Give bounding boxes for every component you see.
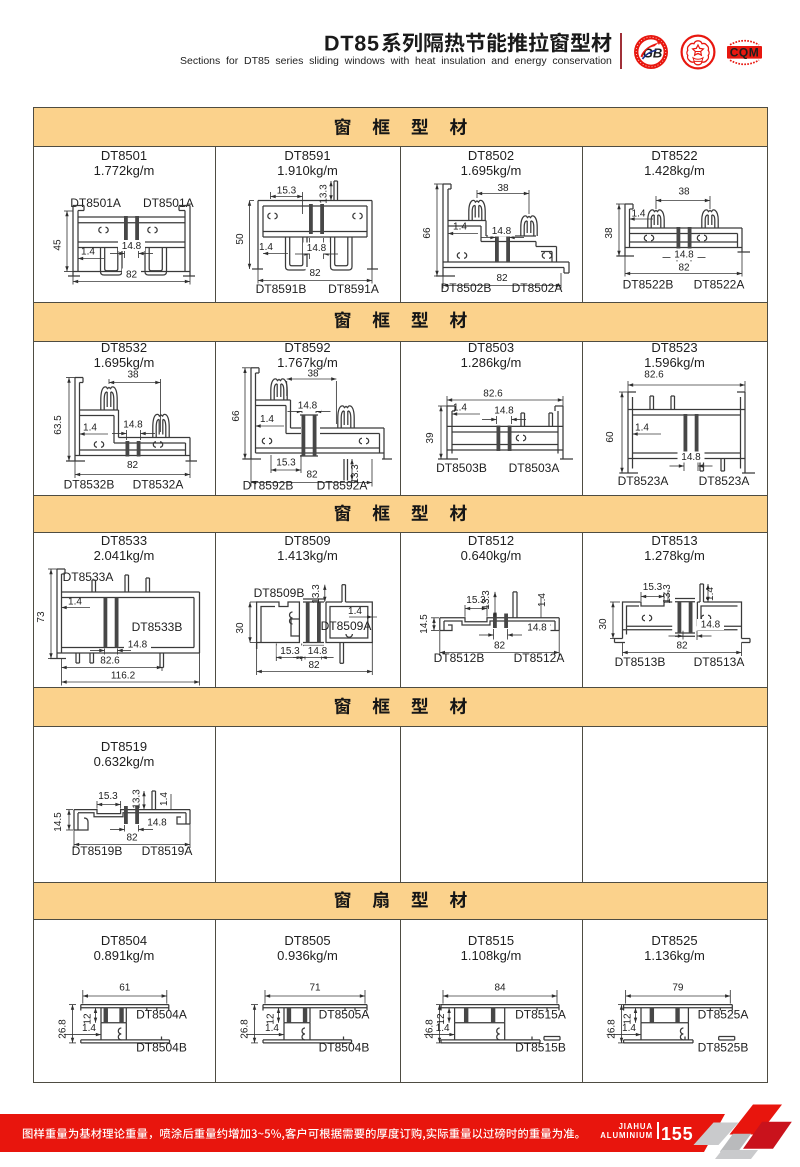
svg-text:63.5: 63.5 — [53, 415, 64, 435]
svg-text:14.8: 14.8 — [308, 646, 328, 657]
svg-text:14.8: 14.8 — [674, 250, 694, 261]
svg-text:82: 82 — [126, 833, 138, 844]
svg-text:DT8591A: DT8591A — [328, 282, 379, 296]
svg-text:DT8503A: DT8503A — [509, 461, 560, 475]
svg-text:1.4: 1.4 — [83, 423, 97, 434]
svg-text:82: 82 — [678, 263, 690, 274]
svg-text:DT8525: DT8525 — [651, 933, 697, 948]
svg-text:DT8532B: DT8532B — [64, 478, 115, 492]
svg-text:13.3: 13.3 — [481, 590, 492, 610]
svg-text:DT8522A: DT8522A — [694, 278, 745, 292]
svg-text:1.108kg/m: 1.108kg/m — [461, 948, 522, 963]
svg-text:82: 82 — [496, 273, 508, 284]
svg-text:82: 82 — [676, 641, 688, 652]
svg-text:DT8502B: DT8502B — [441, 281, 492, 295]
svg-text:66: 66 — [231, 410, 242, 422]
svg-text:DT8533B: DT8533B — [132, 620, 183, 634]
svg-text:1.4: 1.4 — [81, 247, 95, 258]
svg-text:1.4: 1.4 — [436, 1023, 450, 1034]
svg-text:DT8503B: DT8503B — [436, 461, 487, 475]
svg-text:30: 30 — [598, 618, 609, 630]
svg-text:DT8501A: DT8501A — [70, 196, 121, 210]
svg-text:14.8: 14.8 — [298, 401, 318, 412]
svg-text:DT8532A: DT8532A — [133, 478, 184, 492]
svg-text:1.4: 1.4 — [635, 423, 649, 434]
svg-text:DT8523A: DT8523A — [618, 474, 669, 488]
svg-text:14.5: 14.5 — [53, 812, 64, 832]
svg-text:DT8502: DT8502 — [468, 148, 514, 163]
svg-text:DT8592: DT8592 — [284, 340, 330, 355]
svg-text:1.4: 1.4 — [68, 597, 82, 608]
svg-text:38: 38 — [127, 370, 139, 381]
svg-text:DT8513A: DT8513A — [694, 655, 745, 669]
svg-text:DT8509A: DT8509A — [321, 619, 372, 633]
svg-text:DT8502A: DT8502A — [512, 281, 563, 295]
svg-text:82.6: 82.6 — [483, 389, 503, 400]
svg-text:14.8: 14.8 — [527, 623, 547, 634]
svg-text:DT8519B: DT8519B — [72, 844, 123, 858]
svg-text:14.8: 14.8 — [147, 818, 167, 829]
svg-text:1.4: 1.4 — [622, 1023, 636, 1034]
svg-text:1.286kg/m: 1.286kg/m — [461, 355, 522, 370]
svg-text:0.640kg/m: 0.640kg/m — [461, 548, 522, 563]
svg-text:30: 30 — [235, 622, 246, 634]
svg-text:26.8: 26.8 — [58, 1019, 69, 1039]
svg-text:60: 60 — [605, 431, 616, 443]
svg-text:15.3: 15.3 — [280, 646, 300, 657]
svg-text:1.413kg/m: 1.413kg/m — [277, 548, 338, 563]
svg-text:1.4: 1.4 — [453, 403, 467, 414]
svg-text:14.8: 14.8 — [123, 420, 143, 431]
svg-text:DT8523A: DT8523A — [699, 474, 750, 488]
svg-text:82: 82 — [126, 270, 138, 281]
svg-text:1.910kg/m: 1.910kg/m — [277, 163, 338, 178]
svg-text:15.3: 15.3 — [98, 791, 118, 802]
svg-text:82.6: 82.6 — [644, 370, 664, 381]
svg-text:1.4: 1.4 — [705, 587, 716, 601]
svg-text:DT8503: DT8503 — [468, 340, 514, 355]
svg-text:1.772kg/m: 1.772kg/m — [94, 163, 155, 178]
svg-text:50: 50 — [235, 233, 246, 245]
svg-text:DT8522: DT8522 — [651, 148, 697, 163]
svg-text:DT8591: DT8591 — [284, 148, 330, 163]
svg-text:DT8519A: DT8519A — [142, 844, 193, 858]
svg-text:13.3: 13.3 — [311, 584, 322, 604]
svg-text:DT8504B: DT8504B — [319, 1041, 370, 1055]
svg-text:1.4: 1.4 — [453, 222, 467, 233]
svg-text:116.2: 116.2 — [111, 671, 136, 682]
svg-text:0.891kg/m: 0.891kg/m — [94, 948, 155, 963]
svg-text:82: 82 — [309, 268, 321, 279]
svg-text:DT8522B: DT8522B — [623, 278, 674, 292]
svg-text:1.4: 1.4 — [82, 1023, 96, 1034]
svg-text:1.4: 1.4 — [265, 1023, 279, 1034]
svg-text:1.4: 1.4 — [632, 209, 646, 220]
svg-text:DT8513B: DT8513B — [615, 655, 666, 669]
svg-text:15.3: 15.3 — [643, 582, 663, 593]
svg-text:82: 82 — [308, 660, 320, 671]
svg-text:DT8515A: DT8515A — [515, 1008, 566, 1022]
svg-text:1.136kg/m: 1.136kg/m — [644, 948, 705, 963]
svg-text:1.695kg/m: 1.695kg/m — [94, 355, 155, 370]
svg-text:38: 38 — [604, 227, 615, 239]
svg-text:DT8509: DT8509 — [284, 533, 330, 548]
svg-text:1.4: 1.4 — [537, 593, 548, 607]
svg-text:82: 82 — [127, 460, 139, 471]
svg-text:1.4: 1.4 — [348, 606, 362, 617]
svg-text:38: 38 — [678, 187, 690, 198]
svg-text:1.428kg/m: 1.428kg/m — [644, 163, 705, 178]
svg-text:DT8592B: DT8592B — [243, 479, 294, 493]
svg-text:DT8533: DT8533 — [101, 533, 147, 548]
svg-text:DT8504: DT8504 — [101, 933, 147, 948]
svg-text:14.5: 14.5 — [419, 614, 430, 634]
svg-text:26.8: 26.8 — [607, 1019, 618, 1039]
svg-text:14.8: 14.8 — [701, 620, 721, 631]
svg-text:DT8504A: DT8504A — [136, 1008, 187, 1022]
svg-text:15.3: 15.3 — [277, 186, 297, 197]
svg-text:2.041kg/m: 2.041kg/m — [94, 548, 155, 563]
svg-text:14.8: 14.8 — [122, 241, 142, 252]
svg-text:DT8515B: DT8515B — [515, 1041, 566, 1055]
svg-text:45: 45 — [53, 239, 64, 251]
svg-text:38: 38 — [497, 183, 509, 194]
svg-text:DT8512A: DT8512A — [514, 651, 565, 665]
svg-text:14.8: 14.8 — [494, 406, 514, 417]
svg-text:DT8533A: DT8533A — [63, 570, 114, 584]
svg-text:DT8591B: DT8591B — [256, 282, 307, 296]
svg-text:13.3: 13.3 — [319, 184, 330, 204]
svg-text:DT8505: DT8505 — [284, 933, 330, 948]
svg-text:66: 66 — [422, 227, 433, 239]
svg-text:82: 82 — [494, 641, 506, 652]
svg-text:DT8504B: DT8504B — [136, 1041, 187, 1055]
svg-text:DT8515: DT8515 — [468, 933, 514, 948]
svg-text:82.6: 82.6 — [100, 656, 120, 667]
svg-text:0.936kg/m: 0.936kg/m — [277, 948, 338, 963]
svg-text:14.8: 14.8 — [128, 640, 148, 651]
svg-text:DT8505A: DT8505A — [319, 1008, 370, 1022]
svg-text:0.632kg/m: 0.632kg/m — [94, 754, 155, 769]
svg-text:61: 61 — [119, 983, 131, 994]
svg-text:DT8523: DT8523 — [651, 340, 697, 355]
svg-text:DT8513: DT8513 — [651, 533, 697, 548]
svg-text:DT8519: DT8519 — [101, 739, 147, 754]
svg-text:1.695kg/m: 1.695kg/m — [461, 163, 522, 178]
svg-text:26.8: 26.8 — [240, 1019, 251, 1039]
svg-text:14.8: 14.8 — [681, 452, 701, 463]
svg-text:79: 79 — [672, 983, 684, 994]
svg-text:84: 84 — [494, 983, 506, 994]
svg-text:15.3: 15.3 — [276, 458, 296, 469]
svg-text:71: 71 — [309, 983, 321, 994]
svg-text:DT8512B: DT8512B — [434, 651, 485, 665]
svg-text:DT8501A: DT8501A — [143, 196, 194, 210]
svg-text:38: 38 — [307, 369, 319, 380]
svg-text:DT8501: DT8501 — [101, 148, 147, 163]
svg-text:DT8525A: DT8525A — [698, 1008, 749, 1022]
svg-text:26.8: 26.8 — [425, 1019, 436, 1039]
svg-text:DT8509B: DT8509B — [254, 586, 305, 600]
svg-text:DT8525B: DT8525B — [698, 1041, 749, 1055]
svg-text:39: 39 — [425, 432, 436, 444]
svg-text:13.3: 13.3 — [662, 584, 673, 604]
svg-text:1.4: 1.4 — [159, 792, 170, 806]
svg-text:13.3: 13.3 — [132, 789, 143, 809]
svg-text:1.4: 1.4 — [260, 414, 274, 425]
svg-text:DT8592A: DT8592A — [317, 479, 368, 493]
svg-text:73: 73 — [36, 611, 47, 623]
svg-text:1.596kg/m: 1.596kg/m — [644, 355, 705, 370]
svg-text:1.278kg/m: 1.278kg/m — [644, 548, 705, 563]
svg-text:14.8: 14.8 — [492, 226, 512, 237]
svg-text:14.8: 14.8 — [307, 243, 327, 254]
svg-text:1.4: 1.4 — [259, 242, 273, 253]
svg-text:DT8532: DT8532 — [101, 340, 147, 355]
svg-text:DT8512: DT8512 — [468, 533, 514, 548]
